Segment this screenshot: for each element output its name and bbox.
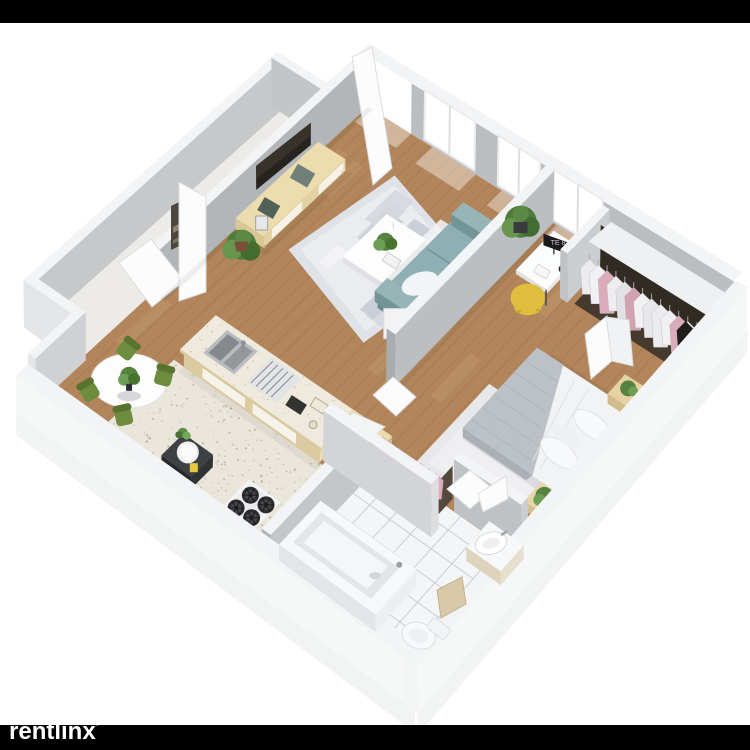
svg-text:rentlinx’: rentlinx’ <box>9 718 99 745</box>
svg-text:TE 8: TE 8 <box>551 240 566 247</box>
